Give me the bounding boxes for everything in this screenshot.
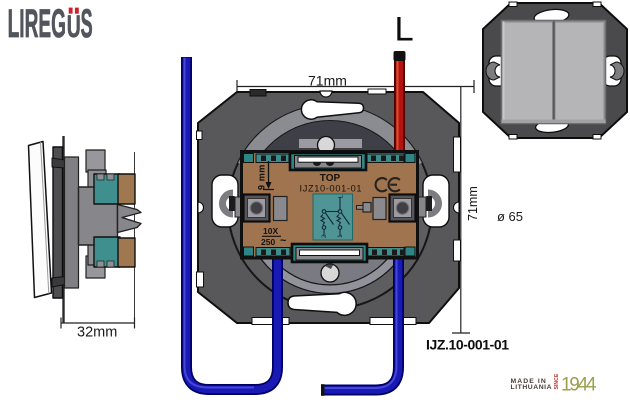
svg-text:ø 65: ø 65	[497, 209, 523, 224]
svg-text:S: S	[81, 1, 93, 46]
svg-text:LITHUANIA: LITHUANIA	[511, 384, 553, 391]
svg-text:9 mm: 9 mm	[257, 164, 267, 190]
svg-text:SINCE: SINCE	[554, 373, 560, 389]
svg-text:1944: 1944	[561, 375, 597, 396]
svg-text:32mm: 32mm	[77, 325, 117, 341]
svg-text:LIREG: LIREG	[8, 2, 66, 46]
svg-text:2: 2	[321, 234, 328, 238]
svg-text:IJZ.10-001-01: IJZ.10-001-01	[426, 337, 509, 353]
svg-text:L: L	[395, 11, 414, 49]
svg-text:L: L	[338, 195, 345, 199]
svg-text:TOP: TOP	[320, 173, 341, 184]
svg-text:1: 1	[337, 234, 344, 238]
svg-text:250: 250	[261, 237, 275, 247]
svg-text:10X: 10X	[263, 226, 278, 236]
svg-text:71mm: 71mm	[308, 73, 347, 89]
svg-text:~: ~	[280, 235, 287, 247]
svg-text:IJZ10-001-01: IJZ10-001-01	[300, 184, 362, 194]
svg-text:71mm: 71mm	[466, 186, 480, 221]
